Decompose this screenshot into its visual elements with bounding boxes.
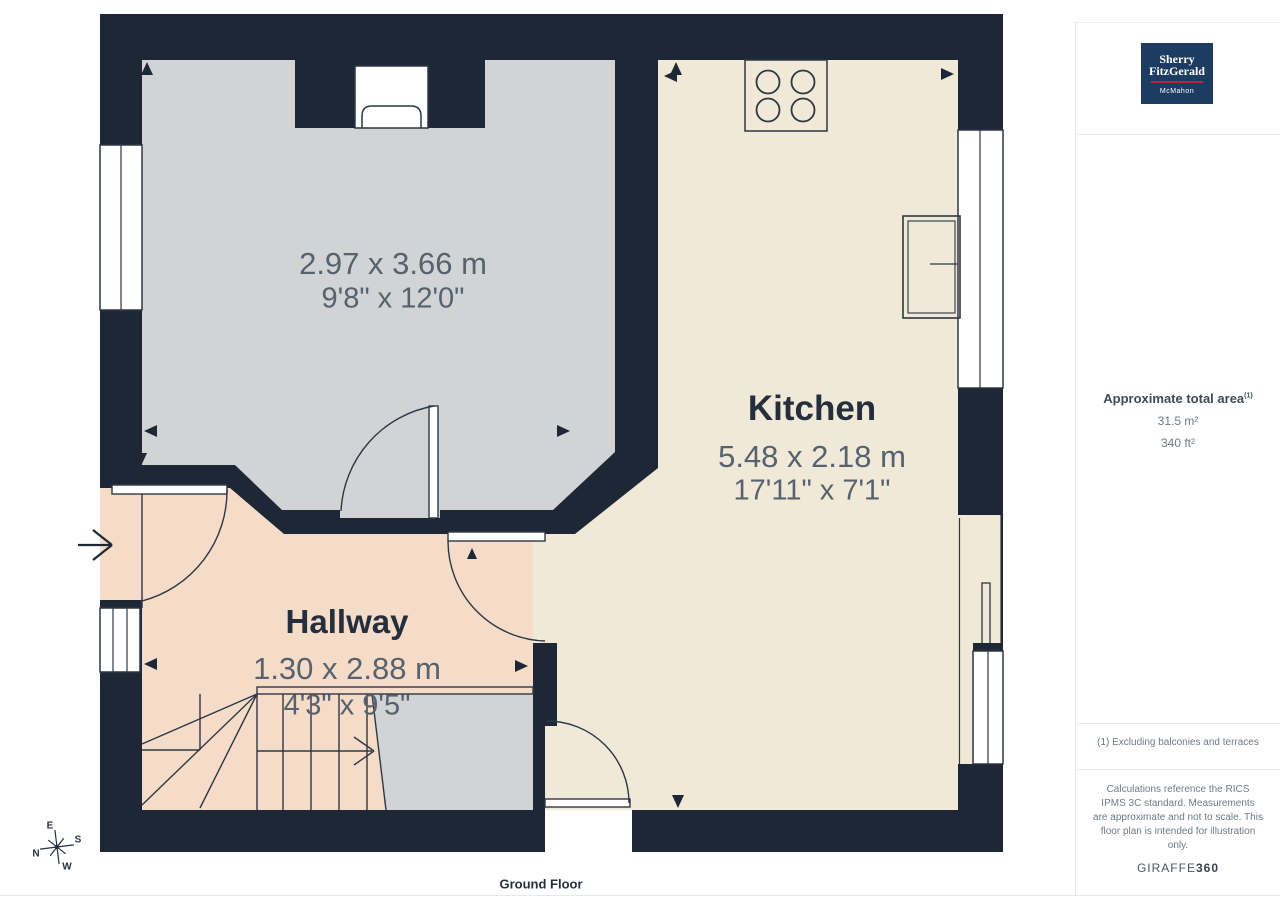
logo-line1: Sherry [1159, 53, 1194, 65]
compass-north-label: N [32, 849, 39, 860]
page-bottom-rule [0, 895, 1280, 896]
compass-west-label: W [62, 862, 71, 873]
total-area-footnote-marker: (1) [1244, 393, 1253, 400]
fireplace-niche [355, 66, 428, 128]
hallway-label: Hallway [286, 603, 409, 641]
hallway-dimensions-metric: 1.30 x 2.88 m [253, 651, 441, 687]
kitchen-dimensions-imperial: 17'11" x 7'1" [734, 475, 891, 508]
window-kitchen-lower-right-icon [973, 651, 1003, 764]
rear-door-opening [545, 810, 632, 852]
floor-plan-canvas [0, 0, 1075, 905]
window-hallway-left-icon [100, 608, 140, 672]
total-area-metric: 31.5 m² [1076, 414, 1280, 428]
rear-side-door-leaf [982, 583, 990, 645]
hallway-dimensions-imperial: 4'3" x 9'5" [284, 690, 411, 723]
total-area-block: Approximate total area(1) 31.5 m² 340 ft… [1076, 391, 1280, 450]
total-area-imperial: 340 ft² [1076, 436, 1280, 450]
brand-suffix: 360 [1196, 861, 1219, 875]
sidebar-divider [1076, 723, 1280, 724]
living-room-dimensions-imperial: 9'8" x 12'0" [322, 283, 465, 316]
disclaimer-text: Calculations reference the RICS IPMS 3C … [1093, 783, 1263, 853]
floor-plan-page: 2.97 x 3.66 m 9'8" x 12'0" Kitchen 5.48 … [0, 0, 1280, 905]
window-sill [973, 643, 1003, 651]
hob-icon [745, 60, 827, 131]
logo-line2: FitzGerald [1149, 65, 1205, 78]
agency-logo: Sherry FitzGerald McMahon [1141, 43, 1213, 104]
brand-name: GIRAFFE [1137, 861, 1196, 875]
logo-line3: McMahon [1160, 88, 1194, 95]
logo-underline [1151, 81, 1203, 83]
compass-icon [40, 830, 74, 864]
kitchen-dimensions-metric: 5.48 x 2.18 m [718, 439, 906, 475]
kitchen-label: Kitchen [748, 389, 876, 429]
total-area-title: Approximate total area(1) [1076, 391, 1280, 406]
living-room-dimensions-metric: 2.97 x 3.66 m [299, 246, 487, 282]
compass-south-label: S [75, 835, 82, 846]
window-living-left-icon [100, 145, 142, 310]
total-area-title-text: Approximate total area [1103, 391, 1244, 406]
sidebar-divider [1076, 134, 1280, 135]
giraffe360-brand: GIRAFFE360 [1076, 861, 1280, 875]
area-footnote: (1) Excluding balconies and terraces [1086, 737, 1270, 748]
compass-east-label: E [47, 821, 54, 832]
sidebar-divider [1076, 769, 1280, 770]
window-kitchen-right-icon [958, 130, 1003, 388]
info-sidebar: Sherry FitzGerald McMahon Approximate to… [1075, 22, 1279, 895]
floor-title: Ground Floor [499, 877, 582, 892]
